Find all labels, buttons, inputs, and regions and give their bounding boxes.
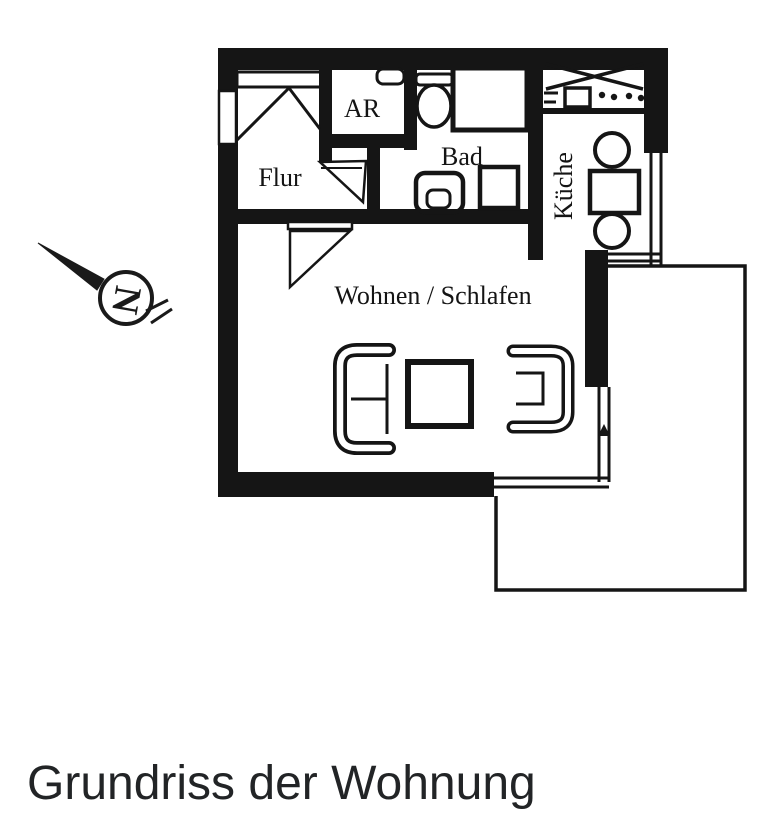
room-label-flur: Flur [258, 163, 302, 192]
kitchen-fixtures [530, 64, 648, 248]
burner-dot [611, 94, 617, 100]
living-door-swing [290, 231, 350, 287]
stove-icon [590, 171, 639, 213]
kitchen-sink-icon [565, 88, 590, 107]
room-label-wohnen-schlafen: Wohnen / Schlafen [334, 281, 531, 310]
kitchen-window [651, 152, 661, 266]
room-label-ar: AR [344, 94, 381, 123]
wardrobe-diagonals [234, 88, 320, 143]
wall-bottom [218, 472, 494, 497]
washing-machine-icon [480, 167, 518, 208]
burner-dot [626, 93, 632, 99]
living-door-leaf [288, 222, 352, 229]
wardrobe-shelf [237, 72, 327, 87]
wall-kitchen-left [528, 70, 543, 260]
armchair-inner-line [513, 351, 568, 427]
living-furniture [340, 350, 568, 448]
wall-ar-bottom [319, 134, 417, 148]
floor-plan: Flur AR Bad Küche Wohnen / Schlafen N [0, 0, 782, 740]
burner-dot [599, 92, 605, 98]
burner-dot [638, 95, 644, 101]
living-window [494, 478, 609, 487]
bathroom-fixtures [416, 68, 527, 212]
counter-edge [530, 108, 648, 114]
armchair-icon [513, 351, 568, 427]
armchair-seat-line [516, 373, 543, 404]
entry-niche [219, 91, 236, 144]
sink-basin [427, 190, 450, 208]
caption: Grundriss der Wohnung [27, 756, 536, 811]
sofa-cushion-lines [351, 364, 387, 434]
north-arrow: N [38, 243, 172, 324]
north-arrow-needle [38, 243, 104, 290]
page: Flur AR Bad Küche Wohnen / Schlafen N Gr… [0, 0, 782, 832]
room-label-kueche: Küche [549, 152, 578, 220]
ar-shelf [377, 69, 404, 84]
wall-right-kitchen [644, 48, 668, 153]
kitchen-bottom-wall [608, 254, 661, 261]
room-label-bad: Bad [441, 142, 483, 171]
counter-ticks [544, 93, 558, 102]
shower-icon [453, 68, 527, 130]
kitchen-appliance-round-top [595, 133, 629, 167]
wall-living-balcony [585, 250, 608, 387]
toilet-icon [417, 85, 451, 127]
sink-icon [416, 173, 463, 212]
north-label: N [103, 283, 149, 317]
table-icon [408, 362, 471, 426]
wall-top [218, 48, 668, 70]
kitchen-appliance-round-bottom [595, 214, 629, 248]
